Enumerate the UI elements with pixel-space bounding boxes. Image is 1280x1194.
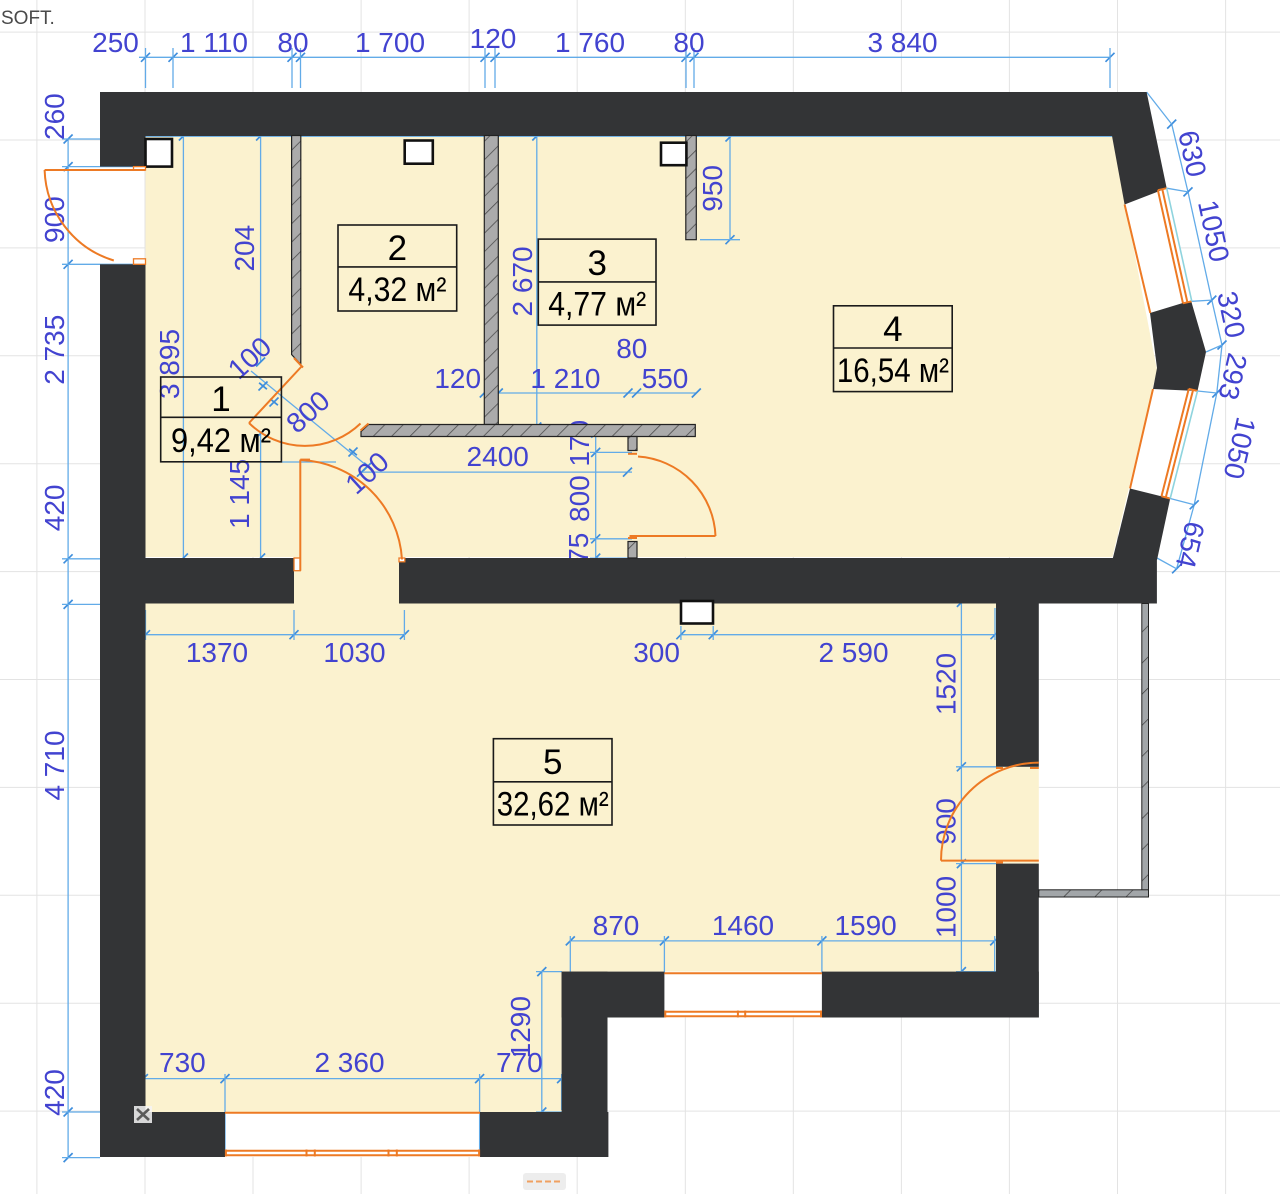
svg-text:120: 120	[470, 23, 517, 54]
svg-text:260: 260	[39, 93, 70, 140]
svg-text:4: 4	[883, 310, 902, 349]
svg-text:420: 420	[39, 485, 70, 532]
svg-text:420: 420	[39, 1069, 70, 1116]
svg-text:1000: 1000	[931, 876, 962, 938]
svg-text:2: 2	[388, 229, 407, 268]
svg-text:5: 5	[543, 743, 562, 782]
svg-text:250: 250	[92, 27, 139, 58]
svg-text:950: 950	[697, 165, 728, 212]
svg-text:2400: 2400	[467, 441, 529, 472]
svg-text:4,32 м²: 4,32 м²	[348, 271, 446, 309]
svg-text:2 360: 2 360	[314, 1047, 384, 1078]
svg-text:2 590: 2 590	[818, 637, 888, 668]
svg-text:730: 730	[159, 1047, 206, 1078]
svg-text:1 110: 1 110	[180, 27, 248, 58]
svg-text:3: 3	[587, 244, 606, 283]
svg-text:80: 80	[673, 27, 704, 58]
svg-text:1520: 1520	[931, 653, 962, 715]
svg-text:32,62 м²: 32,62 м²	[497, 786, 609, 824]
svg-text:2 670: 2 670	[507, 246, 538, 316]
svg-text:1 210: 1 210	[530, 363, 600, 394]
svg-text:4,77 м²: 4,77 м²	[548, 286, 646, 324]
svg-text:80: 80	[277, 27, 308, 58]
svg-text:80: 80	[616, 333, 647, 364]
svg-text:9,42 м²: 9,42 м²	[171, 422, 271, 460]
svg-text:3 895: 3 895	[154, 329, 185, 399]
svg-text:204: 204	[229, 225, 260, 272]
svg-text:1 760: 1 760	[555, 27, 625, 58]
svg-text:1590: 1590	[834, 910, 896, 941]
svg-text:900: 900	[931, 798, 962, 845]
svg-text:550: 550	[642, 363, 689, 394]
svg-text:900: 900	[39, 196, 70, 243]
svg-text:1 700: 1 700	[355, 27, 425, 58]
svg-text:1460: 1460	[712, 910, 774, 941]
svg-text:3 840: 3 840	[867, 27, 937, 58]
svg-text:300: 300	[633, 637, 680, 668]
svg-text:2 735: 2 735	[39, 315, 70, 385]
svg-text:SOFT.: SOFT.	[1, 8, 55, 29]
svg-text:870: 870	[593, 910, 640, 941]
svg-text:16,54 м²: 16,54 м²	[837, 352, 949, 390]
svg-text:120: 120	[434, 363, 481, 394]
svg-text:1030: 1030	[323, 637, 385, 668]
svg-text:4 710: 4 710	[39, 730, 70, 800]
svg-text:770: 770	[496, 1047, 543, 1078]
svg-text:1: 1	[211, 380, 230, 419]
svg-text:800: 800	[564, 475, 595, 522]
svg-text:1370: 1370	[186, 637, 248, 668]
svg-text:1 145: 1 145	[224, 459, 255, 529]
